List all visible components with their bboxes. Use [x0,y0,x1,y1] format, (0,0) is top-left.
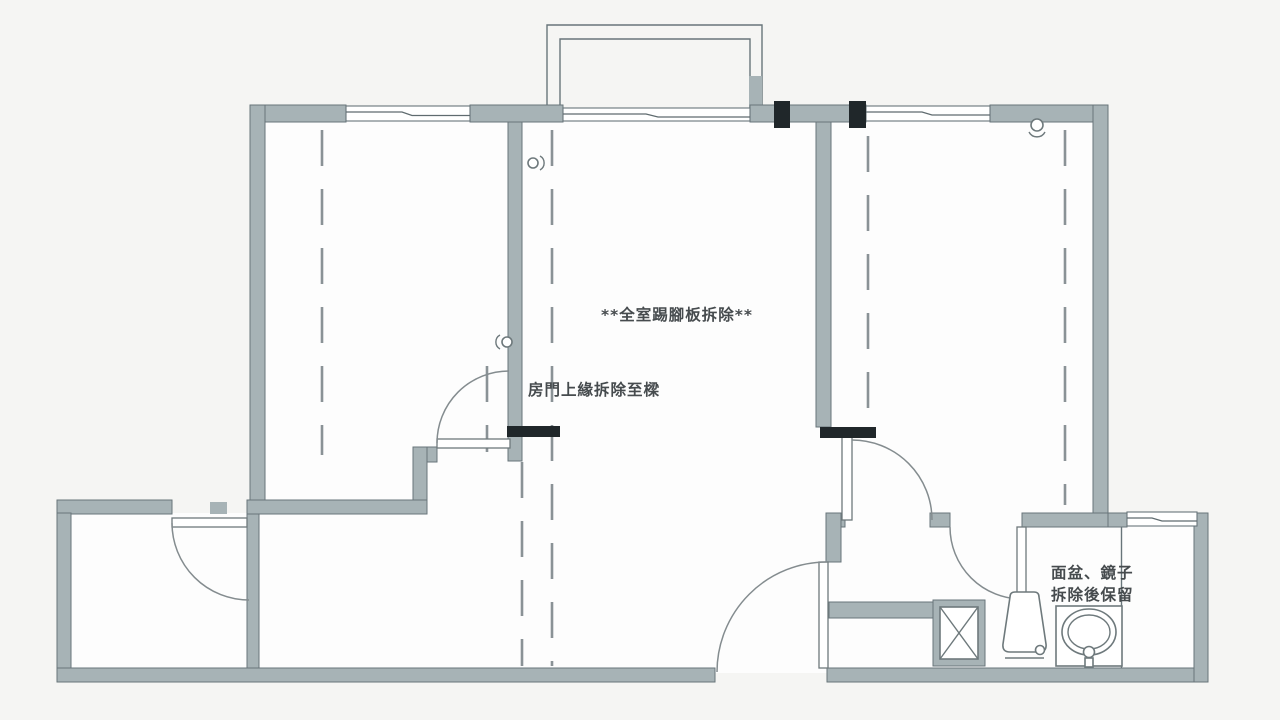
window-icon [346,106,470,121]
floor-plan-drawing [0,0,1280,720]
floor-plan-page: **全室踢腳板拆除** 房門上緣拆除至樑 面盆、鏡子 拆除後保留 [0,0,1280,720]
bay-window-outline [547,25,762,112]
annotation-door-lintel-removal: 房門上緣拆除至樑 [528,378,660,400]
sink-icon [1056,606,1122,667]
window-icon [1127,512,1197,526]
annotation-basin-mirror-line1: 面盆、鏡子 [1051,564,1134,582]
shaft-x-icon [933,600,985,666]
window-icon [563,108,750,121]
window-icon [866,106,990,121]
annotation-basin-mirror-line2: 拆除後保留 [1051,586,1134,604]
annotation-basin-mirror-keep: 面盆、鏡子 拆除後保留 [1051,562,1161,606]
annotation-skirting-removal: **全室踢腳板拆除** [601,303,753,325]
toilet-icon [1003,592,1046,658]
